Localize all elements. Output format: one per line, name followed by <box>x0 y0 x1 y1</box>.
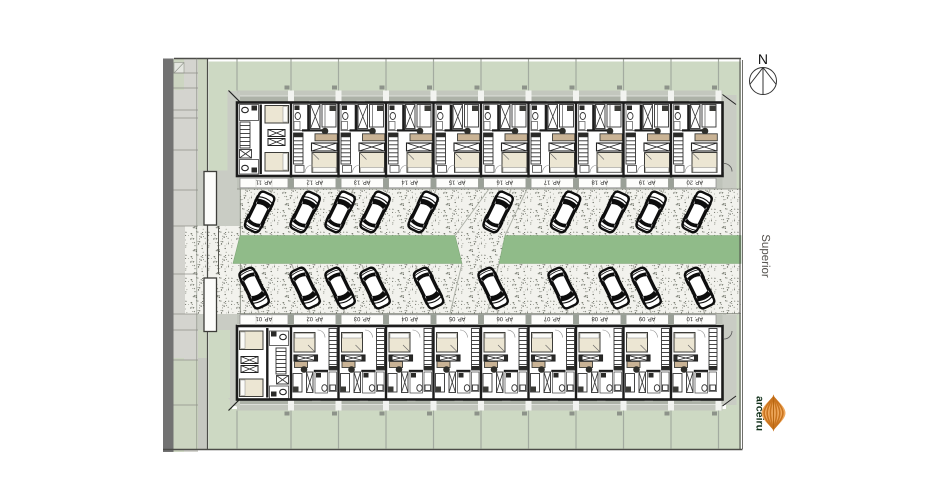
svg-text:AP. 14: AP. 14 <box>401 179 418 185</box>
svg-text:AP. 02: AP. 02 <box>306 315 323 322</box>
svg-text:AP. 17: AP. 17 <box>544 179 561 185</box>
svg-text:AP. 12: AP. 12 <box>306 179 323 186</box>
svg-text:AP. 18: AP. 18 <box>591 179 608 186</box>
svg-text:AP. 04: AP. 04 <box>401 315 418 322</box>
svg-text:AP. 16: AP. 16 <box>496 179 513 186</box>
svg-text:AP. 01: AP. 01 <box>256 315 273 322</box>
svg-text:AP. 06: AP. 06 <box>496 315 513 322</box>
svg-text:AP. 10: AP. 10 <box>686 315 703 322</box>
svg-text:N: N <box>758 51 768 67</box>
svg-text:AP. 13: AP. 13 <box>354 179 371 186</box>
svg-text:AP. 09: AP. 09 <box>639 315 656 322</box>
svg-text:AP. 07: AP. 07 <box>544 315 561 322</box>
svg-text:AP. 03: AP. 03 <box>354 315 371 322</box>
svg-text:AP. 05: AP. 05 <box>449 315 466 322</box>
svg-text:AP. 15: AP. 15 <box>449 179 466 185</box>
svg-text:AP. 20: AP. 20 <box>686 179 703 186</box>
svg-text:AP. 08: AP. 08 <box>591 315 608 322</box>
svg-text:AP. 19: AP. 19 <box>639 179 656 186</box>
svg-text:AP. 11: AP. 11 <box>256 179 272 185</box>
svg-text:Superior: Superior <box>759 234 771 278</box>
